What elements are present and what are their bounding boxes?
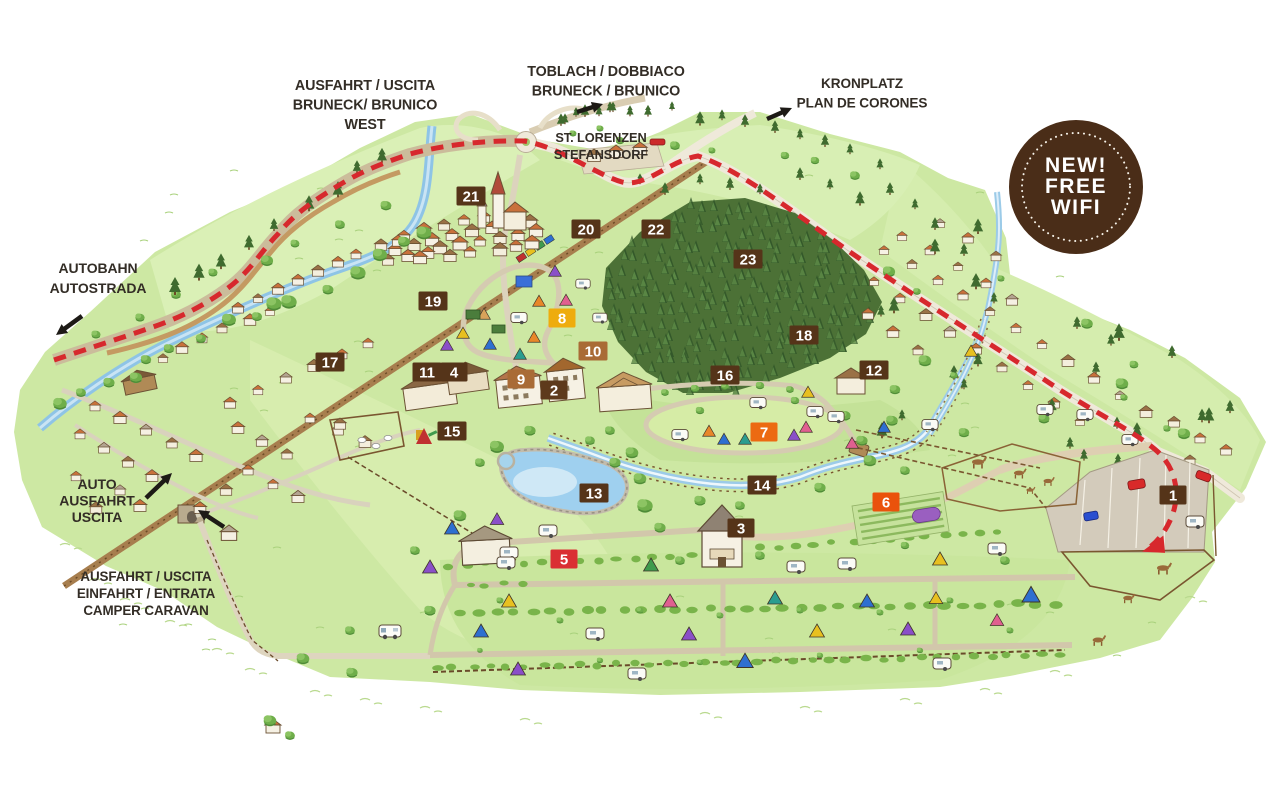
- svg-text:KRONPLATZ: KRONPLATZ: [821, 76, 903, 91]
- svg-text:ST. LORENZEN: ST. LORENZEN: [555, 130, 646, 145]
- svg-text:17: 17: [322, 355, 339, 372]
- svg-text:16: 16: [717, 368, 734, 385]
- svg-text:USCITA: USCITA: [72, 509, 122, 525]
- svg-text:12: 12: [866, 363, 883, 380]
- svg-text:6: 6: [882, 495, 890, 512]
- svg-text:AUSFAHRT / USCITA: AUSFAHRT / USCITA: [295, 78, 435, 94]
- svg-text:14: 14: [754, 478, 771, 495]
- svg-text:AUTO: AUTO: [77, 476, 116, 492]
- svg-text:AUSFAHRT: AUSFAHRT: [59, 493, 135, 509]
- svg-text:1: 1: [1169, 488, 1177, 505]
- svg-text:CAMPER CARAVAN: CAMPER CARAVAN: [83, 603, 208, 618]
- svg-text:3: 3: [737, 521, 745, 538]
- svg-text:23: 23: [740, 252, 757, 269]
- svg-text:AUTOSTRADA: AUTOSTRADA: [50, 280, 147, 296]
- svg-text:STEFANSDORF: STEFANSDORF: [554, 147, 648, 162]
- svg-text:WIFI: WIFI: [1051, 196, 1101, 219]
- svg-text:4: 4: [450, 365, 459, 382]
- svg-text:NEW!: NEW!: [1045, 154, 1107, 177]
- svg-text:9: 9: [517, 372, 525, 389]
- svg-text:5: 5: [560, 552, 568, 569]
- svg-text:TOBLACH / DOBBIACO: TOBLACH / DOBBIACO: [527, 64, 685, 80]
- svg-text:PLAN DE CORONES: PLAN DE CORONES: [797, 96, 928, 111]
- svg-text:2: 2: [550, 383, 558, 400]
- svg-text:22: 22: [648, 222, 665, 239]
- svg-text:BRUNECK / BRUNICO: BRUNECK / BRUNICO: [532, 84, 680, 100]
- svg-text:15: 15: [444, 424, 461, 441]
- svg-text:10: 10: [585, 344, 602, 361]
- svg-text:AUTOBAHN: AUTOBAHN: [58, 260, 137, 276]
- svg-text:BRUNECK/ BRUNICO: BRUNECK/ BRUNICO: [293, 98, 438, 114]
- svg-text:AUSFAHRT / USCITA: AUSFAHRT / USCITA: [80, 569, 212, 584]
- svg-text:WEST: WEST: [345, 117, 386, 133]
- svg-text:18: 18: [796, 328, 813, 345]
- svg-text:7: 7: [760, 425, 768, 442]
- svg-text:8: 8: [558, 311, 566, 328]
- svg-text:11: 11: [419, 365, 435, 382]
- svg-text:FREE: FREE: [1045, 175, 1107, 198]
- svg-text:20: 20: [578, 222, 595, 239]
- svg-text:13: 13: [586, 486, 603, 503]
- svg-text:19: 19: [425, 294, 442, 311]
- svg-text:EINFAHRT / ENTRATA: EINFAHRT / ENTRATA: [77, 586, 216, 601]
- svg-text:21: 21: [463, 189, 480, 206]
